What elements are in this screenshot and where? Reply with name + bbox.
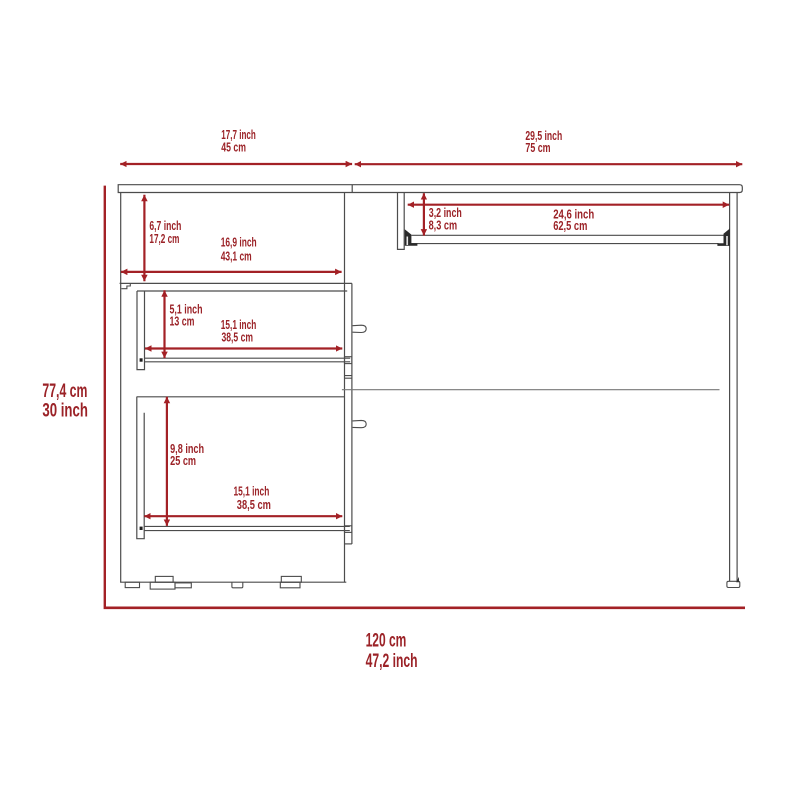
svg-text:16,9 inch: 16,9 inch [221, 235, 257, 250]
svg-text:25 cm: 25 cm [170, 453, 196, 468]
svg-text:120 cm: 120 cm [366, 630, 407, 651]
svg-text:47,2 inch: 47,2 inch [366, 651, 418, 672]
svg-text:77,4 cm: 77,4 cm [42, 381, 87, 402]
svg-text:38,5 cm: 38,5 cm [237, 497, 271, 512]
svg-text:45 cm: 45 cm [221, 140, 246, 155]
svg-text:62,5 cm: 62,5 cm [553, 218, 587, 233]
svg-text:43,1 cm: 43,1 cm [221, 248, 252, 263]
svg-text:17,2 cm: 17,2 cm [149, 231, 179, 246]
svg-text:13 cm: 13 cm [170, 313, 195, 328]
svg-text:30 inch: 30 inch [42, 400, 88, 421]
svg-text:8,3 cm: 8,3 cm [429, 217, 458, 232]
svg-text:38,5 cm: 38,5 cm [222, 329, 254, 344]
svg-text:75 cm: 75 cm [525, 140, 550, 155]
